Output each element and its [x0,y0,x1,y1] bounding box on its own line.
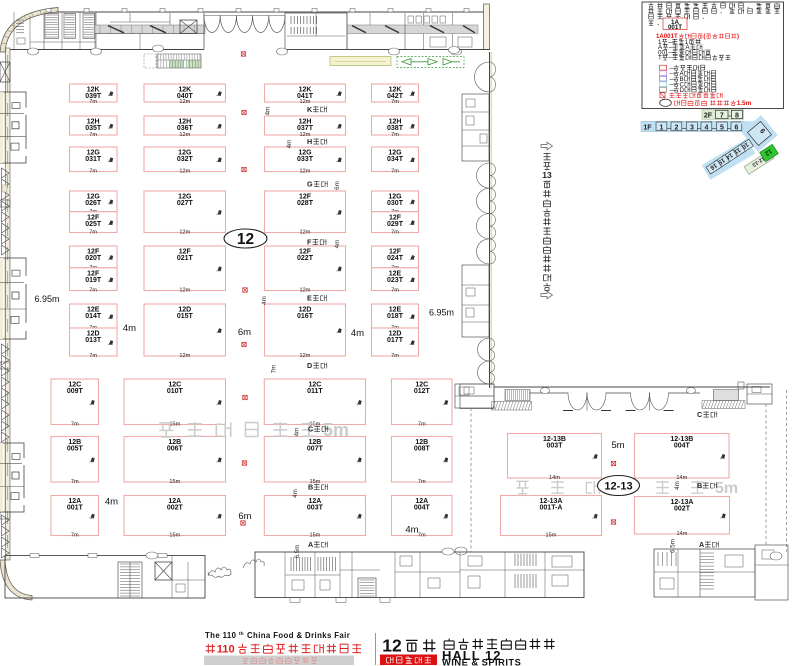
svg-text:6m: 6m [238,327,251,338]
svg-text:D: D [680,87,685,94]
svg-text:7m: 7m [271,365,278,374]
svg-text:011T: 011T [307,388,323,395]
svg-text:012T: 012T [414,388,431,395]
svg-text:2F: 2F [704,112,713,119]
svg-text:F: F [307,238,312,247]
svg-text:037T: 037T [297,125,314,132]
svg-text:5m: 5m [323,420,349,440]
svg-text:6m: 6m [334,181,341,190]
svg-text:038T: 038T [387,125,404,132]
svg-text:4m: 4m [286,140,293,149]
svg-text:12m: 12m [179,169,190,175]
svg-text:1.5m: 1.5m [737,100,752,107]
svg-text:7m: 7m [89,132,97,138]
svg-text:027T: 027T [177,200,194,207]
svg-text:017T: 017T [387,337,404,344]
svg-text:14m: 14m [677,531,688,537]
svg-text:7m: 7m [391,99,399,105]
svg-text:7m: 7m [391,132,399,138]
svg-text:013T: 013T [85,337,102,344]
svg-text:12m: 12m [179,99,190,105]
svg-text:15m: 15m [169,479,180,485]
svg-text:12m: 12m [300,353,311,359]
svg-text:7m: 7m [71,533,79,539]
svg-text:12-13: 12-13 [604,481,632,493]
svg-text:003T: 003T [547,443,564,450]
svg-text:G: G [307,180,313,189]
svg-text:12m: 12m [300,169,311,175]
svg-text:5m: 5m [611,440,624,451]
svg-text:4m: 4m [351,328,364,339]
svg-text:002T: 002T [167,505,184,512]
svg-text:7m: 7m [391,353,399,359]
svg-text:4m: 4m [294,428,301,437]
svg-text:4m: 4m [405,525,418,536]
svg-text:036T: 036T [177,125,194,132]
svg-text:6m: 6m [238,511,251,522]
svg-text:004T: 004T [674,443,691,450]
svg-text:7m: 7m [418,422,426,428]
svg-text:E: E [307,294,312,303]
svg-text:12m: 12m [179,353,190,359]
svg-text:001T: 001T [668,24,682,31]
svg-text:7m: 7m [418,479,426,485]
svg-text:110: 110 [217,644,235,656]
svg-text:034T: 034T [387,156,404,163]
svg-text:1F: 1F [643,125,652,132]
svg-text:K: K [307,105,313,114]
svg-text:4m: 4m [265,107,272,116]
svg-text:1: 1 [659,125,663,132]
svg-text:031T: 031T [85,156,102,163]
svg-text:030T: 030T [387,200,404,207]
svg-text:6: 6 [734,125,738,132]
svg-text:015T: 015T [177,313,194,320]
svg-text:): ) [737,33,739,40]
svg-text:018T: 018T [387,313,404,320]
svg-text:4m: 4m [123,323,136,334]
svg-text:C: C [697,410,702,419]
svg-text:China Food & Drinks Fair: China Food & Drinks Fair [247,631,350,640]
svg-text:H: H [307,137,312,146]
svg-text:019T: 019T [85,277,102,284]
svg-text:014T: 014T [85,313,102,320]
svg-text:7m: 7m [391,169,399,175]
svg-text:7m: 7m [89,169,97,175]
svg-text:002T: 002T [674,506,691,513]
svg-text:th: th [239,631,244,637]
svg-text:The 110: The 110 [205,631,237,640]
svg-text:WINE & SPIRITS: WINE & SPIRITS [442,658,521,666]
svg-text:13: 13 [542,170,552,180]
svg-text:4: 4 [704,125,708,132]
svg-text:7m: 7m [71,422,79,428]
svg-text:6.5m: 6.5m [294,545,301,559]
svg-text:006T: 006T [167,446,184,453]
svg-text:7m: 7m [418,533,426,539]
svg-text:7: 7 [720,112,724,119]
svg-text:7m: 7m [89,230,97,236]
svg-text:7m: 7m [89,288,97,294]
svg-text:6.95m: 6.95m [429,308,454,318]
svg-text:T: T [658,55,662,62]
svg-text:023T: 023T [387,277,404,284]
svg-text:12m: 12m [179,230,190,236]
svg-text:7m: 7m [89,353,97,359]
svg-text:033T: 033T [297,156,314,163]
svg-text:12: 12 [237,231,254,248]
svg-text:3: 3 [690,125,694,132]
svg-text:12m: 12m [300,230,311,236]
svg-text:003T: 003T [307,505,324,512]
svg-text:001T-A: 001T-A [540,505,563,512]
svg-text:035T: 035T [85,125,102,132]
svg-text:12m: 12m [179,132,190,138]
svg-text:6.95m: 6.95m [34,294,59,304]
svg-text:7m: 7m [391,230,399,236]
svg-text:5: 5 [720,125,724,132]
svg-text:12: 12 [382,636,402,656]
svg-text:016T: 016T [297,313,314,320]
svg-text:010T: 010T [167,388,184,395]
svg-text:—: — [668,55,675,62]
svg-text:15m: 15m [169,533,180,539]
svg-text:4m: 4m [334,240,341,249]
svg-text:B: B [308,483,313,492]
svg-text:022T: 022T [297,255,314,262]
svg-text:029T: 029T [387,221,404,228]
svg-text:5m: 5m [715,480,738,497]
svg-text:005T: 005T [67,446,84,453]
svg-text:14m: 14m [676,475,687,481]
svg-text:024T: 024T [387,255,404,262]
svg-text:4m: 4m [105,497,118,508]
svg-text:028T: 028T [297,200,314,207]
svg-text:026T: 026T [85,200,102,207]
svg-text:D: D [307,361,312,370]
svg-text:032T: 032T [177,156,194,163]
svg-text:6.5m: 6.5m [670,539,677,553]
svg-text:15m: 15m [309,533,320,539]
svg-text:7m: 7m [71,479,79,485]
svg-text:008T: 008T [414,446,431,453]
svg-text:007T: 007T [307,446,324,453]
svg-text:4m: 4m [674,481,681,490]
svg-text:004T: 004T [414,505,431,512]
svg-text:4m: 4m [261,296,268,305]
svg-text:021T: 021T [177,255,194,262]
svg-text:12m: 12m [179,288,190,294]
svg-text:009T: 009T [67,388,84,395]
svg-text:8: 8 [735,112,739,119]
svg-text:15m: 15m [546,533,557,539]
svg-text:001T: 001T [67,505,84,512]
svg-text:4m: 4m [292,489,299,498]
svg-text:14m: 14m [549,475,560,481]
svg-text:A: A [699,540,704,549]
svg-text:7m: 7m [89,99,97,105]
svg-text:020T: 020T [85,255,102,262]
svg-text:7m: 7m [391,288,399,294]
svg-text:B: B [697,481,702,490]
svg-text:2: 2 [674,125,678,132]
svg-text:C: C [308,425,313,434]
svg-text:A: A [308,540,313,549]
svg-text:025T: 025T [85,221,102,228]
